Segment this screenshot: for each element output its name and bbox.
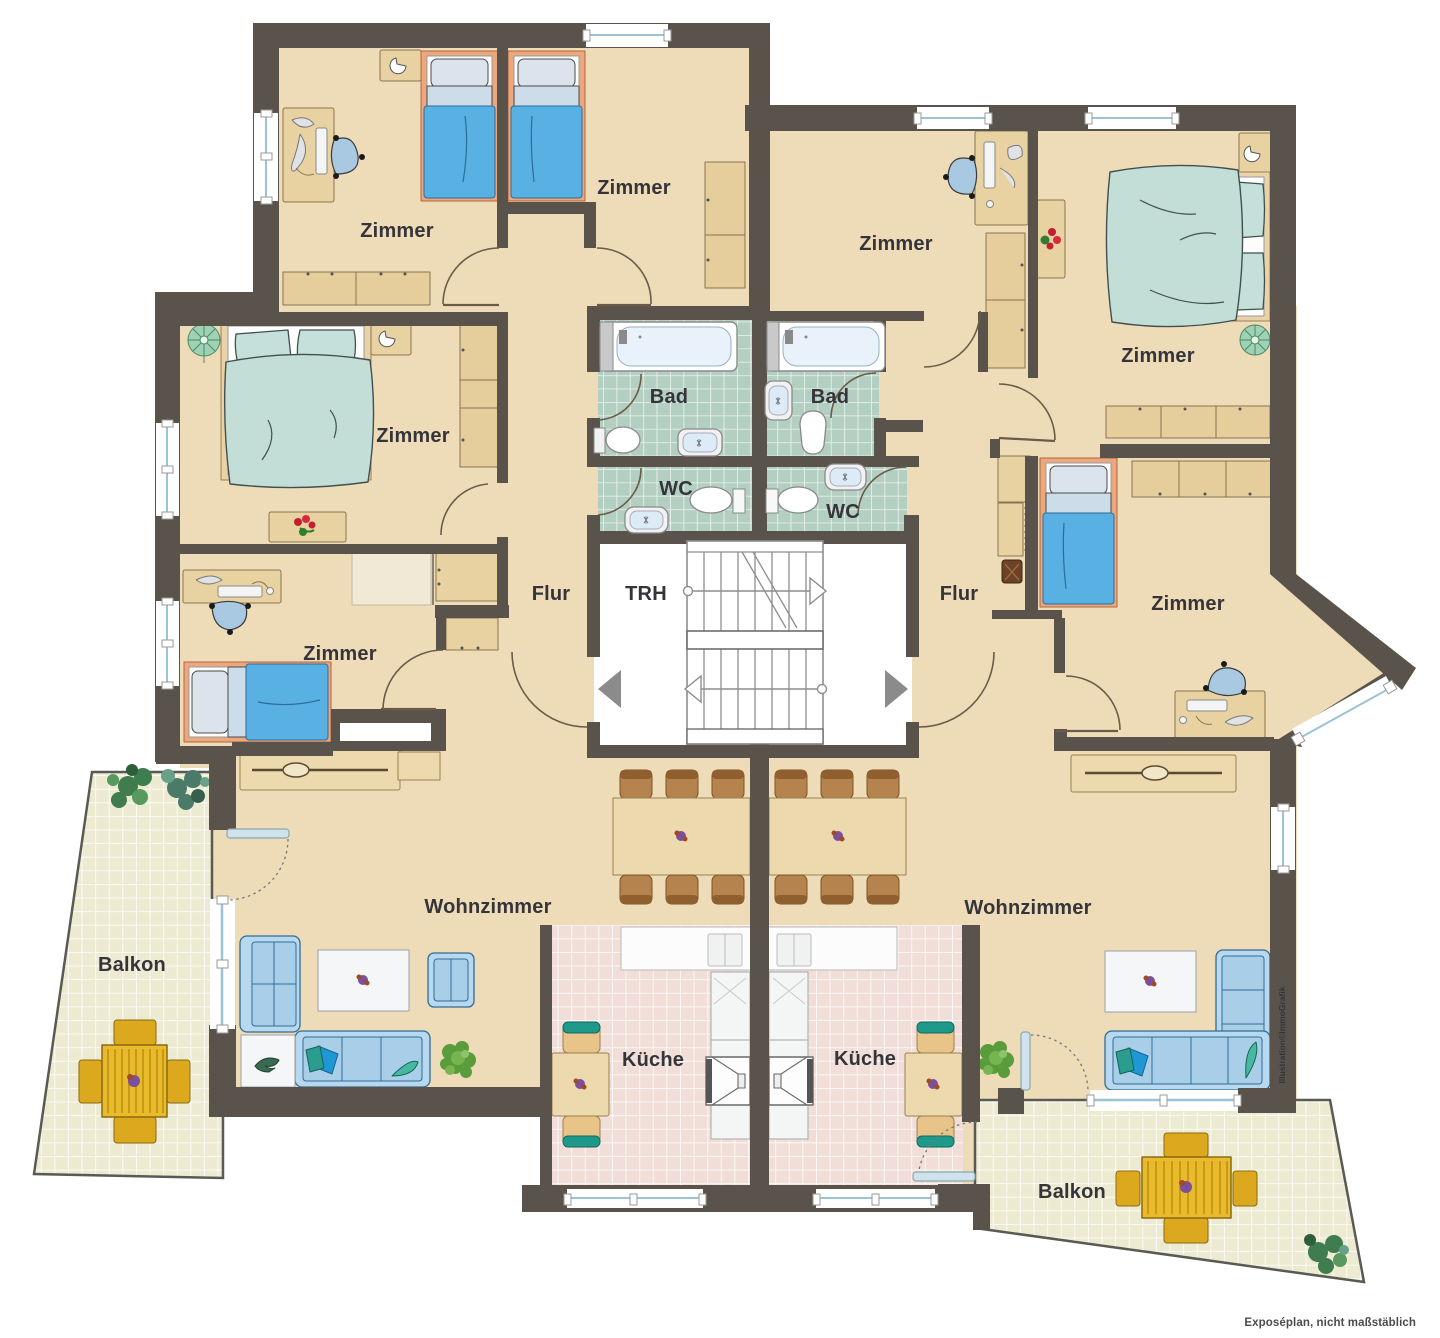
svg-text:Wohnzimmer: Wohnzimmer xyxy=(424,896,551,918)
svg-text:Balkon: Balkon xyxy=(98,954,166,976)
svg-text:Illustration©ImmoGrafik: Illustration©ImmoGrafik xyxy=(1277,986,1287,1083)
svg-text:WC: WC xyxy=(659,478,693,500)
svg-text:Küche: Küche xyxy=(834,1048,896,1070)
svg-text:Zimmer: Zimmer xyxy=(376,425,449,447)
svg-text:Wohnzimmer: Wohnzimmer xyxy=(964,897,1091,919)
svg-text:Flur: Flur xyxy=(940,583,979,605)
svg-text:Zimmer: Zimmer xyxy=(1121,345,1194,367)
svg-text:Zimmer: Zimmer xyxy=(303,643,376,665)
svg-text:Zimmer: Zimmer xyxy=(360,220,433,242)
svg-text:Bad: Bad xyxy=(811,386,849,408)
svg-text:Zimmer: Zimmer xyxy=(597,177,670,199)
svg-text:Küche: Küche xyxy=(622,1049,684,1071)
svg-text:Balkon: Balkon xyxy=(1038,1181,1106,1203)
svg-text:Zimmer: Zimmer xyxy=(1151,593,1224,615)
svg-text:WC: WC xyxy=(826,501,860,523)
svg-text:TRH: TRH xyxy=(625,583,667,605)
svg-text:Flur: Flur xyxy=(532,583,571,605)
svg-text:Bad: Bad xyxy=(650,386,688,408)
svg-text:Exposéplan, nicht maßstäblich: Exposéplan, nicht maßstäblich xyxy=(1244,1317,1416,1329)
svg-text:Zimmer: Zimmer xyxy=(859,233,932,255)
